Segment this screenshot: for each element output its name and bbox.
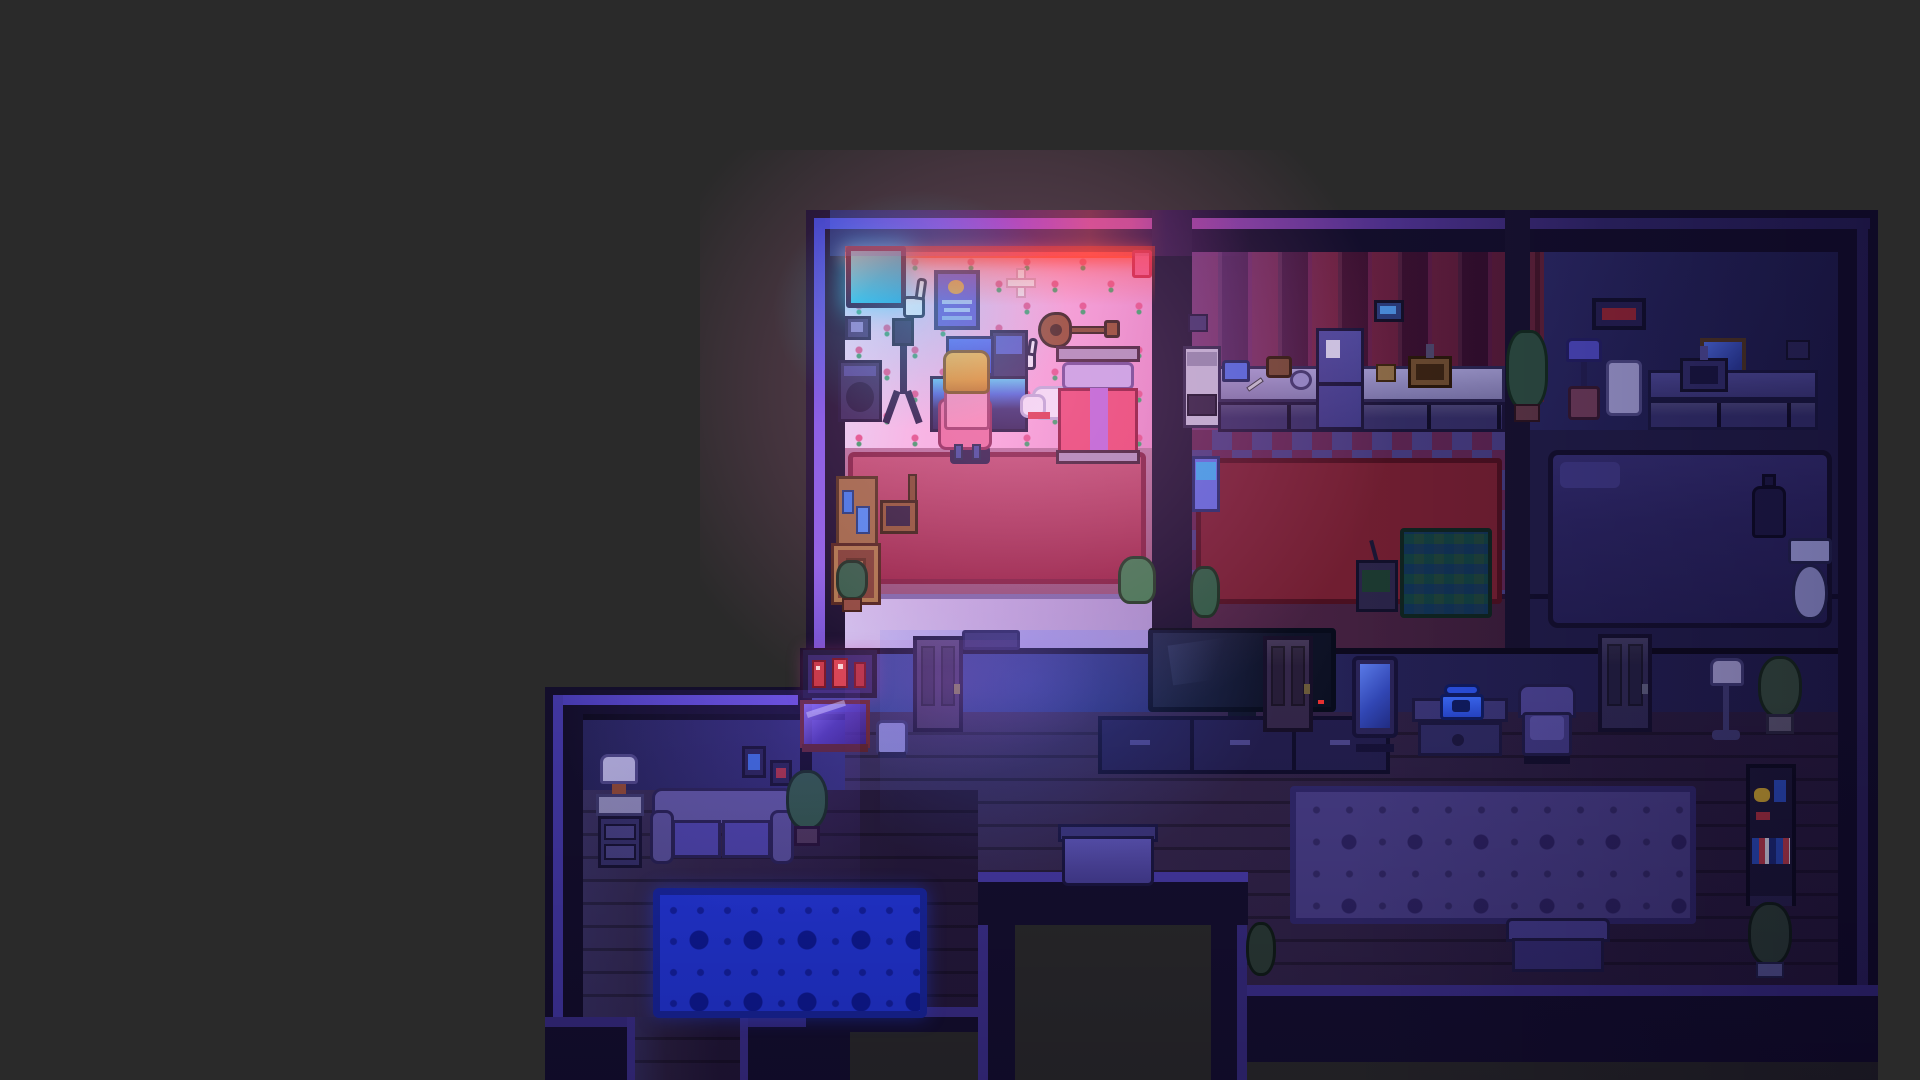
armchair-legs xyxy=(1524,756,1570,764)
potted-plant-bedroom-right xyxy=(1118,556,1156,604)
kitchen-sink-basin xyxy=(1416,364,1444,380)
room-divider-right xyxy=(1505,210,1530,648)
nightstand-drawer-2 xyxy=(604,844,636,860)
camera-tripod-pole xyxy=(900,346,907,394)
small-chair-panel xyxy=(886,506,910,526)
tv-cabinet-handle-1 xyxy=(1130,740,1150,745)
couch-cushion-right[interactable] xyxy=(722,820,771,858)
dark-vase-neck xyxy=(1762,474,1776,488)
door-1-panel-left xyxy=(921,646,935,706)
oven-window xyxy=(1187,394,1217,416)
dark-vase xyxy=(1752,486,1786,538)
potted-plant-hallway-pot xyxy=(1766,714,1794,734)
bed-footboard xyxy=(1056,450,1140,464)
bluebedroom-bed-pillow xyxy=(1560,462,1620,488)
telephone-table-handle xyxy=(1452,734,1464,746)
bed-pillow xyxy=(1062,362,1134,390)
desk-shelf-screen xyxy=(996,336,1022,354)
wall-highlight-left xyxy=(814,218,825,680)
living-lamp-table xyxy=(596,794,644,816)
wall-highlight-ext-left xyxy=(553,695,563,1072)
table-lamp-pole-blue xyxy=(1581,362,1587,388)
bench[interactable] xyxy=(1512,938,1604,972)
bed-blanket-stripe xyxy=(1090,388,1108,454)
door-2-panel-right xyxy=(1291,646,1305,706)
bed-headboard xyxy=(1056,346,1140,362)
poster-text-line-1 xyxy=(942,300,972,304)
vanity-drawers xyxy=(1648,400,1818,430)
ext-bottom-wall-right xyxy=(740,1017,806,1080)
display-figure-3 xyxy=(854,662,866,688)
kitchen-fridge[interactable] xyxy=(1316,328,1364,430)
cutting-board xyxy=(1376,364,1396,382)
room-divider-left xyxy=(1152,210,1192,648)
corridor-wall-highlight-left xyxy=(627,1017,635,1080)
couch-cushion-left[interactable] xyxy=(672,820,721,858)
cooking-pot xyxy=(1266,356,1292,378)
wall-highlight-top xyxy=(814,218,1870,229)
notch-right-wall xyxy=(1211,925,1247,1080)
old-tv-screen xyxy=(1362,570,1390,592)
potted-plant-bottom-right xyxy=(1748,902,1792,966)
tv-cabinet-handle-2 xyxy=(1230,740,1250,745)
tv-cabinet-handle-3 xyxy=(1330,740,1350,745)
candle-blue-1 xyxy=(842,490,854,514)
standing-mirror-glass[interactable] xyxy=(1360,664,1390,728)
wall-outlet-bedroom-face xyxy=(851,322,863,332)
candle-blue-2 xyxy=(856,506,870,534)
dog-plush-collar xyxy=(1028,412,1050,419)
speaker-amp-top xyxy=(844,366,876,376)
bluebedroom-picture-art xyxy=(1602,308,1636,320)
vanity-faucet xyxy=(1700,346,1708,360)
potted-plant-bedroom xyxy=(836,560,868,600)
potted-plant-bedroom-pot xyxy=(842,598,862,612)
nightstand-drawer-1 xyxy=(604,824,636,840)
potted-plant-notch xyxy=(1246,922,1276,976)
potted-plant-hallway xyxy=(1758,656,1802,718)
guitar-neck xyxy=(1068,326,1108,334)
potted-plant-living-pot xyxy=(794,826,820,846)
ext-bottom-wall-left xyxy=(545,1017,635,1080)
door-1-panel-right xyxy=(941,646,955,706)
corridor-wall-highlight-right xyxy=(740,1017,748,1080)
draped-chair[interactable] xyxy=(1606,360,1642,416)
display-figure-2 xyxy=(832,658,848,688)
table-lamp-shade-blue xyxy=(1566,338,1602,362)
wall-highlight-right xyxy=(1857,218,1868,1054)
floor-lamp-pole xyxy=(1723,686,1729,732)
potted-plant-kitchen xyxy=(1190,566,1220,618)
door-3-panel-left xyxy=(1607,644,1622,706)
blue-rug xyxy=(653,888,927,1018)
stool-feet xyxy=(878,752,906,758)
poster-text-line-2 xyxy=(944,308,970,312)
plus-decoration-horizontal xyxy=(1006,278,1036,288)
toilet[interactable] xyxy=(1792,564,1828,620)
player-character-hair xyxy=(943,350,990,394)
water-cooler-bottle xyxy=(1196,462,1216,480)
tv-cabinet[interactable] xyxy=(1098,716,1390,774)
picture-frame-blue-art xyxy=(748,754,760,770)
wall-outlet-kitchen xyxy=(1188,314,1208,332)
display-figure-window-2 xyxy=(838,664,843,669)
game-viewport xyxy=(0,0,1920,1080)
stove-top xyxy=(1187,352,1217,366)
couch-arm-left xyxy=(650,810,674,864)
exit-corridor-floor xyxy=(635,1017,740,1080)
living-lamp-shade xyxy=(600,754,638,784)
glass-display-legs xyxy=(802,744,868,752)
bookshelf-red-items xyxy=(1756,812,1770,820)
fridge-note xyxy=(1326,340,1340,358)
camera-tripod-head xyxy=(892,318,914,346)
potted-plant-living xyxy=(786,770,828,830)
floor-lamp-shade xyxy=(1710,658,1744,686)
potted-plant-bottom-right-pot xyxy=(1756,962,1784,978)
bedroom-doormat xyxy=(962,630,1020,650)
stool[interactable] xyxy=(876,720,908,756)
table-lamp-pot-blue xyxy=(1568,386,1600,420)
armchair-cushion xyxy=(1530,716,1564,740)
fridge-divider xyxy=(1316,382,1364,386)
kitchen-faucet xyxy=(1426,344,1434,358)
dining-table-plaid[interactable] xyxy=(1400,528,1492,618)
door-3-knob xyxy=(1642,684,1648,694)
player-character-leg-left xyxy=(954,444,963,460)
bookshelf-blue-book xyxy=(1774,780,1786,802)
player-character-leg-right xyxy=(972,444,981,460)
bookshelf-duck-toy xyxy=(1754,788,1770,802)
kitchen-picture-art xyxy=(1380,306,1396,314)
wall-highlight-ext-top xyxy=(553,695,798,705)
background-cut-bottom-left xyxy=(850,1032,978,1080)
speaker-amp-grille xyxy=(846,382,874,412)
vanity-sink-basin xyxy=(1690,366,1718,384)
door-1-knob xyxy=(954,684,960,694)
background-notch-bottom-center xyxy=(1015,925,1211,1080)
poster-sun-icon xyxy=(948,280,964,294)
bookshelf[interactable] xyxy=(1746,764,1796,906)
area-rug-purple xyxy=(1290,786,1696,924)
television-standby-led xyxy=(1318,700,1324,704)
guitar-head xyxy=(1104,320,1120,338)
toilet-tank xyxy=(1788,538,1832,564)
display-figure-window-1 xyxy=(816,666,820,670)
telephone-dial xyxy=(1452,700,1470,712)
door-3-panel-right xyxy=(1628,644,1643,706)
floor-lamp-base xyxy=(1712,730,1740,740)
toaster[interactable] xyxy=(1222,360,1250,382)
standing-mirror-feet xyxy=(1356,744,1394,752)
bookshelf-book-row xyxy=(1752,838,1790,864)
vanity-counter xyxy=(1648,370,1818,400)
door-2-panel-left xyxy=(1271,646,1285,706)
picture-frame-red-art xyxy=(776,768,786,778)
plate-stack xyxy=(1290,370,1312,390)
display-figure-1 xyxy=(812,660,826,688)
door-2-knob xyxy=(1304,684,1310,694)
bedroom-corner-box xyxy=(1132,250,1152,278)
bedroom-window-monitor[interactable] xyxy=(846,246,906,308)
poster-text-line-3 xyxy=(942,316,972,320)
tv-cabinet-divider-1 xyxy=(1190,720,1194,770)
spare-bed[interactable] xyxy=(1062,836,1154,886)
potted-plant-bluebedroom xyxy=(1506,330,1548,410)
potted-plant-bluebedroom-pot xyxy=(1514,404,1540,422)
wall-outlet-bluebedroom xyxy=(1786,340,1810,360)
guitar-soundhole xyxy=(1050,324,1062,336)
